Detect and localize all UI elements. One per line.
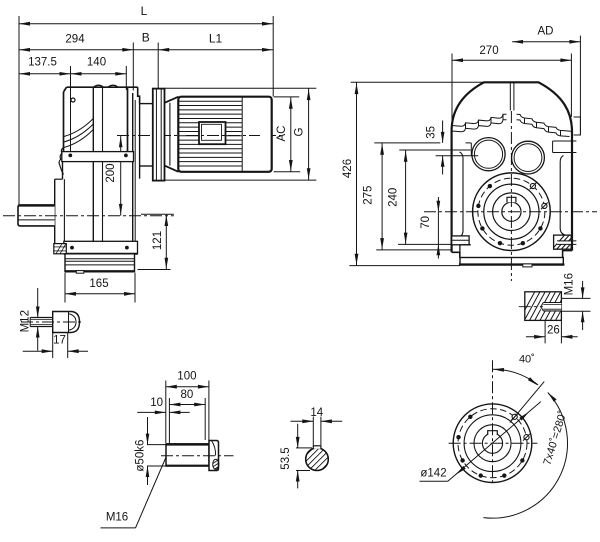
svg-text:AC: AC	[276, 126, 288, 142]
svg-text:17: 17	[53, 335, 66, 347]
svg-text:ø50k6: ø50k6	[135, 440, 147, 472]
svg-text:70: 70	[420, 216, 432, 229]
svg-text:26: 26	[547, 324, 560, 336]
svg-text:200: 200	[105, 163, 117, 182]
svg-text:AD: AD	[538, 26, 554, 38]
svg-text:240: 240	[388, 188, 400, 207]
svg-text:137.5: 137.5	[28, 57, 57, 69]
svg-text:B: B	[142, 31, 150, 45]
svg-text:ø142: ø142	[420, 468, 446, 480]
svg-text:14: 14	[310, 407, 323, 419]
svg-text:140: 140	[87, 57, 106, 69]
svg-text:121: 121	[152, 231, 164, 250]
svg-text:M12: M12	[20, 310, 32, 332]
svg-text:M16: M16	[106, 512, 128, 524]
svg-text:275: 275	[363, 186, 375, 205]
svg-text:100: 100	[177, 371, 196, 383]
svg-text:G: G	[293, 127, 305, 136]
svg-text:80: 80	[181, 389, 194, 401]
svg-text:L: L	[141, 4, 148, 18]
svg-text:165: 165	[89, 278, 108, 290]
svg-text:40˚: 40˚	[519, 354, 535, 366]
svg-text:L1: L1	[209, 32, 223, 46]
svg-text:53.5: 53.5	[280, 447, 292, 469]
svg-text:426: 426	[342, 159, 354, 178]
svg-text:35: 35	[425, 126, 437, 139]
svg-text:M16: M16	[564, 273, 576, 295]
svg-text:294: 294	[65, 34, 85, 46]
svg-text:10: 10	[150, 397, 163, 409]
svg-text:270: 270	[479, 45, 498, 57]
